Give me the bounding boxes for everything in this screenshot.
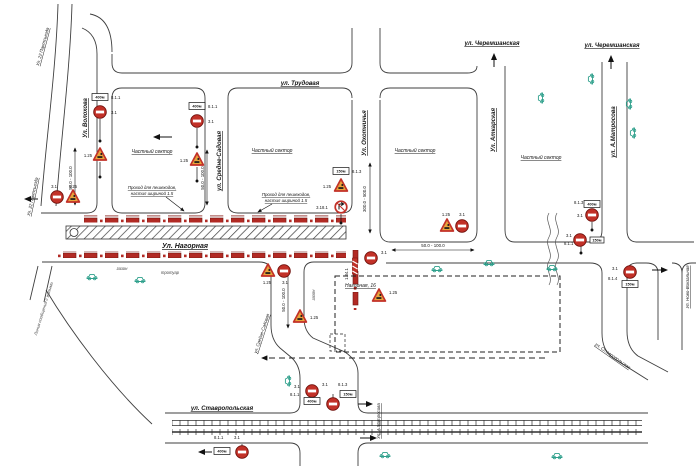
no-entry-sign-icon — [624, 266, 637, 279]
distance-plate: 400м — [189, 103, 205, 110]
roadworks-sign-icon — [67, 190, 80, 202]
distance-plate: 400м — [92, 94, 108, 101]
svg-text:3.1: 3.1 — [566, 233, 572, 238]
pedestrian-note-west: Проход для пешеходов, настил шириной 1.5 — [128, 185, 184, 211]
svg-text:50.0 - 100.0: 50.0 - 100.0 — [281, 288, 286, 312]
svg-text:50.0 - 100.0: 50.0 - 100.0 — [200, 166, 205, 190]
street-label-novo-vokzalnaya: Ул. Ново-Вокзальная — [685, 265, 690, 309]
area-label-private-sector: Частный сектор — [132, 148, 173, 155]
svg-text:настил шириной 1.5: настил шириной 1.5 — [265, 198, 308, 203]
svg-text:8.1.1: 8.1.1 — [214, 435, 224, 440]
no-entry-sign-icon — [327, 398, 340, 411]
dimension-label-okhotnichya: 300.0 - 500.0 — [362, 186, 367, 212]
svg-text:ул. А.Матросова: ул. А.Матросова — [611, 106, 617, 159]
svg-text:150м: 150м — [592, 239, 601, 243]
street-label-trudovaya: ул. Трудовая — [280, 81, 320, 87]
area-label-private-sector: Частный сектор — [252, 147, 293, 154]
svg-text:150м: 150м — [336, 170, 345, 174]
svg-text:150м: 150м — [343, 393, 352, 397]
svg-text:настил шириной 1.5: настил шириной 1.5 — [131, 191, 174, 196]
no-entry-sign-icon — [94, 106, 107, 119]
svg-text:400м: 400м — [95, 96, 104, 100]
pedestrian-note-east: Проход для пешеходов, настил шириной 1.5 — [258, 192, 310, 212]
sign-number-labels: 8.1.1 3.1 8.1.1 3.1 1.25 1.25 8.1.3 1.25… — [51, 95, 618, 440]
barrier-row-south — [56, 251, 346, 258]
no-entry-sign-icon — [456, 220, 469, 233]
svg-text:400м: 400м — [192, 105, 201, 109]
street-label-partsyezda-top: Ул. 22 Партсъезда — [35, 26, 50, 66]
no-entry-sign-icon — [236, 446, 249, 459]
svg-text:400м: 400м — [217, 450, 226, 454]
svg-text:300.0 - 500.0: 300.0 - 500.0 — [362, 186, 367, 212]
street-label-nagornaya: Ул. Нагорная — [162, 243, 208, 250]
car-icon — [380, 452, 390, 457]
chevron-board-icon — [352, 258, 357, 274]
roadworks-sign-icon — [294, 310, 307, 322]
svg-text:3.18.1: 3.18.1 — [316, 205, 328, 210]
car-icon — [588, 74, 593, 84]
svg-text:Проход для пешеходов,: Проход для пешеходов, — [262, 192, 310, 197]
dimension-label-sadovaya: 50.0 - 100.0 — [200, 166, 205, 190]
car-icon — [552, 453, 562, 458]
svg-text:1.25: 1.25 — [442, 212, 451, 217]
car-icon — [285, 376, 290, 386]
roadworks-sign-icon — [191, 153, 204, 165]
no-entry-sign-icon — [278, 265, 291, 278]
svg-text:8.1.3: 8.1.3 — [338, 382, 348, 387]
svg-text:Ул. 22 Партсъезда: Ул. 22 Партсъезда — [35, 26, 50, 66]
no-right-turn-sign-icon — [335, 201, 347, 213]
svg-text:3.1: 3.1 — [577, 213, 583, 218]
distance-plate: 150м — [340, 391, 356, 398]
no-entry-sign-icon — [51, 191, 64, 204]
line-note: Линия сообщения с жилыми — [33, 281, 54, 337]
svg-text:ул. Средне-Садовая: ул. Средне-Садовая — [217, 130, 223, 192]
utility-crossing-line — [548, 213, 559, 285]
svg-text:Проход для пешеходов,: Проход для пешеходов, — [128, 185, 176, 190]
svg-text:1.25: 1.25 — [180, 158, 189, 163]
svg-text:1.25: 1.25 — [310, 315, 319, 320]
traffic-scheme-page: 50.0 - 100.0 50.0 - 100.0 300.0 - 500.0 … — [0, 0, 696, 466]
sidewalk-label: тротуар — [161, 270, 180, 275]
svg-text:Линия сообщения с жилыми: Линия сообщения с жилыми — [33, 281, 54, 337]
car-icon — [135, 277, 145, 282]
svg-text:3.1: 3.1 — [612, 266, 618, 271]
svg-text:1.25: 1.25 — [84, 153, 93, 158]
svg-text:3.1: 3.1 — [111, 110, 117, 115]
svg-text:8.1.4: 8.1.4 — [608, 276, 618, 281]
lawn-label: газон — [117, 266, 128, 271]
svg-text:3.1: 3.1 — [208, 119, 214, 124]
svg-text:400м: 400м — [587, 203, 596, 207]
no-entry-sign-icon — [574, 234, 587, 247]
area-label-private-sector: Частный сектор — [395, 147, 436, 154]
no-entry-sign-icon — [365, 252, 378, 265]
work-zone-start-marker — [70, 229, 78, 237]
street-label-volokhova: Ул. Волохова — [83, 97, 89, 137]
distance-plate: 400м — [304, 398, 320, 405]
street-label-cheremshanskaya-2: ул. Черемшанская — [583, 43, 640, 49]
roadworks-sign-icon — [373, 289, 386, 301]
svg-text:Ул. Аткарская: Ул. Аткарская — [491, 108, 497, 152]
distance-plate: 150м — [590, 237, 604, 243]
street-label-stavropolskaya-east: ул. Ставропольская — [593, 341, 632, 370]
svg-text:1.25: 1.25 — [263, 280, 272, 285]
car-icon — [87, 274, 97, 279]
svg-text:8.1.3: 8.1.3 — [574, 200, 584, 205]
no-entry-sign-icon — [306, 385, 319, 398]
svg-text:8.1.1: 8.1.1 — [111, 95, 121, 100]
street-label-matrosova-south: Ул. А.Матросова — [376, 403, 381, 439]
svg-text:8.1.1: 8.1.1 — [208, 104, 218, 109]
no-entry-sign-icon — [191, 115, 204, 128]
svg-text:Ул. Волохова: Ул. Волохова — [83, 97, 89, 137]
svg-text:Ул. Охотничья: Ул. Охотничья — [362, 110, 368, 156]
street-label-sredne-sadovaya: ул. Средне-Садовая — [217, 130, 223, 192]
svg-text:Ул. А.Матросова: Ул. А.Матросова — [376, 403, 381, 439]
svg-text:1.25: 1.25 — [69, 184, 78, 189]
svg-text:8.1.3: 8.1.3 — [352, 169, 362, 174]
street-label-matrosova: ул. А.Матросова — [611, 106, 617, 159]
svg-text:8.1.1: 8.1.1 — [290, 392, 300, 397]
barrier-row-north — [84, 216, 346, 223]
svg-text:400м: 400м — [307, 400, 316, 404]
roadworks-sign-icon — [441, 219, 454, 231]
distance-plate: 400м — [584, 201, 600, 208]
svg-text:150м: 150м — [625, 283, 634, 287]
svg-text:1.25: 1.25 — [389, 290, 398, 295]
area-label-private-sector: Частный сектор — [521, 154, 562, 161]
traffic-scheme-canvas: 50.0 - 100.0 50.0 - 100.0 300.0 - 500.0 … — [0, 0, 696, 466]
distance-plate: 400м — [214, 448, 230, 455]
roadworks-sign-icon — [262, 264, 275, 276]
svg-text:1.34.1: 1.34.1 — [344, 268, 349, 280]
svg-text:3.1: 3.1 — [282, 280, 288, 285]
distance-plate: 150м — [333, 168, 349, 175]
svg-text:ул. Средне-Садовая: ул. Средне-Садовая — [253, 312, 271, 354]
tram-track-lower — [172, 429, 642, 435]
car-icon — [630, 128, 635, 138]
dimension-label-sadovaya-south: 50.0 - 100.0 — [281, 288, 286, 312]
roadworks-sign-icon — [94, 148, 107, 160]
street-label-okhotnichya: Ул. Охотничья — [362, 110, 368, 156]
street-label-atkarskaya: Ул. Аткарская — [491, 108, 497, 152]
building-label: Нагорная, 16 — [345, 283, 376, 289]
street-label-cheremshanskaya-1: ул. Черемшанская — [463, 41, 520, 47]
svg-text:Ул. Ново-Вокзальная: Ул. Ново-Вокзальная — [685, 265, 690, 309]
svg-text:8.1.1: 8.1.1 — [564, 241, 574, 246]
work-zone-hatch — [66, 226, 346, 239]
svg-text:3.1: 3.1 — [381, 250, 387, 255]
street-label-stavropolskaya: ул. Ставропольская — [190, 406, 254, 412]
svg-text:газон: газон — [311, 289, 316, 300]
street-label-sredne-sadovaya-south: ул. Средне-Садовая — [253, 312, 271, 354]
svg-text:3.1: 3.1 — [294, 384, 300, 389]
svg-text:1.25: 1.25 — [323, 184, 332, 189]
tram-track-upper — [172, 420, 642, 426]
no-entry-sign-icon — [586, 209, 599, 222]
svg-text:Ул. 22 Партсъезда: Ул. 22 Партсъезда — [26, 176, 39, 216]
svg-text:3.1: 3.1 — [51, 184, 57, 189]
svg-text:ул. Ставропольская: ул. Ставропольская — [593, 341, 632, 370]
street-label-partsyezda-left: Ул. 22 Партсъезда — [26, 176, 39, 216]
distance-plate: 150м — [622, 281, 638, 288]
lawn-label-vertical: газон — [311, 289, 316, 300]
car-icon — [538, 93, 543, 103]
svg-text:3.1: 3.1 — [322, 382, 328, 387]
svg-text:3.1: 3.1 — [234, 435, 240, 440]
roadworks-sign-icon — [335, 179, 348, 191]
svg-text:3.1: 3.1 — [459, 212, 465, 217]
dimension-label-continuation: 50.0 - 100.0 — [421, 243, 445, 248]
car-icon — [432, 266, 442, 271]
